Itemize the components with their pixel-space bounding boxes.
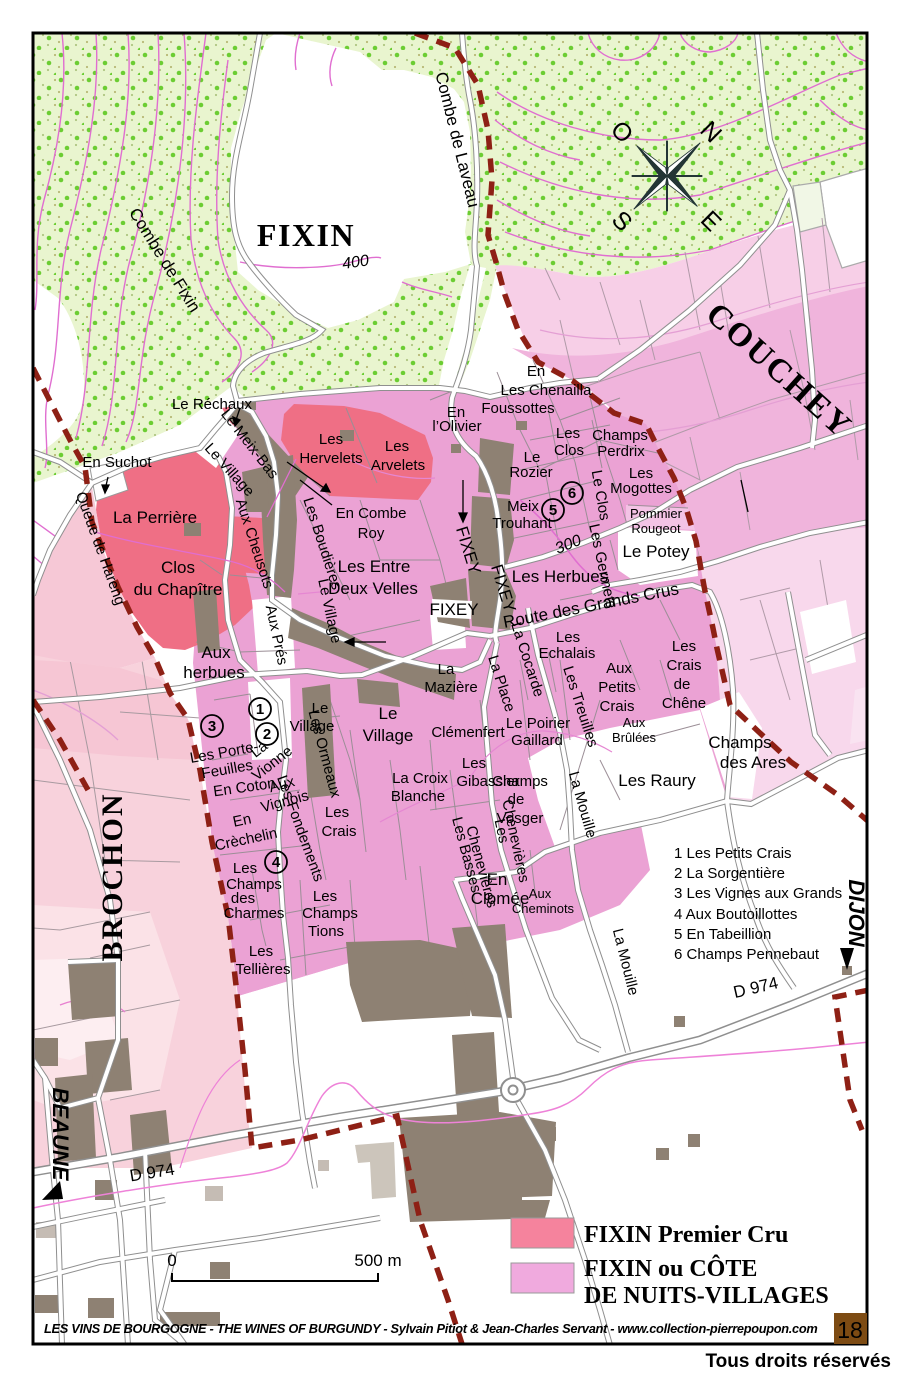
svg-text:de: de [674,676,691,693]
svg-text:5: 5 [549,502,557,519]
svg-text:0: 0 [167,1251,176,1270]
svg-text:Trouhant: Trouhant [492,515,552,532]
svg-text:3 Les Vignes aux Grands: 3 Les Vignes aux Grands [674,885,842,902]
svg-text:Charmes: Charmes [224,905,285,922]
svg-text:des Ares: des Ares [720,753,786,772]
svg-text:La Perrière: La Perrière [113,508,197,527]
svg-text:Chêne: Chêne [662,695,706,712]
svg-text:Mazière: Mazière [424,679,477,696]
svg-text:Crais: Crais [599,698,634,715]
svg-text:du Chapître: du Chapître [134,580,223,599]
svg-text:BEAUNE: BEAUNE [48,1088,73,1182]
svg-text:Foussottes: Foussottes [481,400,554,417]
svg-text:En: En [527,363,545,380]
svg-text:Aux: Aux [623,715,646,730]
svg-text:Les: Les [556,629,580,646]
svg-text:Tous droits réservés: Tous droits réservés [705,1351,891,1372]
svg-text:BROCHON: BROCHON [96,792,129,961]
svg-text:Brûlées: Brûlées [612,730,657,745]
svg-text:Les: Les [556,425,580,442]
svg-text:5 En Tabeillion: 5 En Tabeillion [674,926,771,943]
svg-text:Les: Les [325,804,349,821]
svg-text:Le Poirier: Le Poirier [506,715,570,732]
svg-text:4: 4 [272,854,281,871]
svg-text:Champs: Champs [708,733,771,752]
svg-text:Clos: Clos [161,558,195,577]
svg-text:Village: Village [363,726,414,745]
svg-text:Crais: Crais [321,823,356,840]
svg-text:500 m: 500 m [354,1251,401,1270]
svg-text:2: 2 [263,726,271,743]
svg-text:Rozier: Rozier [509,464,552,481]
svg-text:Tions: Tions [308,923,344,940]
svg-text:herbues: herbues [183,663,244,682]
svg-text:Deux Velles: Deux Velles [328,579,418,598]
svg-text:Le Réchaux: Le Réchaux [172,396,253,413]
svg-text:Gibassier: Gibassier [456,773,519,790]
svg-text:3: 3 [208,718,216,735]
svg-text:6: 6 [568,485,576,502]
svg-text:Les Entre: Les Entre [338,557,411,576]
svg-text:Cheminots: Cheminots [512,901,575,916]
svg-text:La: La [438,661,455,678]
svg-text:Clos: Clos [554,442,584,459]
svg-text:Les: Les [672,638,696,655]
svg-text:Les: Les [249,943,273,960]
svg-text:Petits: Petits [598,679,636,696]
svg-text:Pommier: Pommier [630,506,683,521]
svg-text:En Combe: En Combe [336,505,407,522]
svg-text:Arvelets: Arvelets [371,457,425,474]
svg-text:Les Herbues: Les Herbues [512,567,608,586]
svg-text:Le Potey: Le Potey [622,542,690,561]
svg-text:6 Champs Pennebaut: 6 Champs Pennebaut [674,946,820,963]
svg-text:FIXIN: FIXIN [257,217,355,253]
svg-text:Champs: Champs [302,905,358,922]
svg-text:1 Les Petits Crais: 1 Les Petits Crais [674,845,792,862]
svg-text:Roy: Roy [358,525,385,542]
svg-text:Les: Les [385,438,409,455]
svg-text:Mogottes: Mogottes [610,480,672,497]
svg-text:Gaillard: Gaillard [511,732,563,749]
svg-text:Les: Les [233,860,257,877]
svg-text:Aux: Aux [201,643,231,662]
svg-text:l’Olivier: l’Olivier [432,418,481,435]
svg-text:FIXIN Premier Cru: FIXIN Premier Cru [584,1222,788,1248]
svg-text:Hervelets: Hervelets [299,450,362,467]
svg-text:Meix: Meix [507,498,539,515]
svg-text:Tellières: Tellières [235,961,290,978]
svg-text:La Croix: La Croix [392,770,448,787]
svg-text:FIXEY: FIXEY [429,600,478,619]
svg-text:En Suchot: En Suchot [82,454,152,471]
svg-text:Les Chenailla: Les Chenailla [501,382,593,399]
svg-text:Les: Les [462,755,486,772]
svg-text:DE NUITS-VILLAGES: DE NUITS-VILLAGES [584,1283,829,1309]
svg-text:18: 18 [837,1317,863,1343]
svg-text:Echalais: Echalais [539,645,596,662]
svg-text:Les: Les [313,888,337,905]
svg-text:Les Raury: Les Raury [618,771,696,790]
svg-text:FIXIN ou CÔTE: FIXIN ou CÔTE [584,1255,757,1282]
svg-text:Champs: Champs [592,427,648,444]
svg-text:2 La Sorgentière: 2 La Sorgentière [674,865,785,882]
svg-text:Crais: Crais [666,657,701,674]
svg-text:Le: Le [379,704,398,723]
svg-text:Perdrix: Perdrix [597,443,645,460]
svg-text:Blanche: Blanche [391,788,445,805]
svg-text:Aux: Aux [606,660,632,677]
svg-text:1: 1 [256,701,264,718]
svg-text:4 Aux Boutoillottes: 4 Aux Boutoillottes [674,906,797,923]
svg-text:Clémenfert: Clémenfert [431,724,505,741]
svg-text:DIJON: DIJON [844,879,869,947]
svg-text:LES VINS DE BOURGOGNE - THE WI: LES VINS DE BOURGOGNE - THE WINES OF BUR… [44,1321,817,1336]
svg-text:Les: Les [319,431,343,448]
svg-text:Rougeot: Rougeot [631,521,681,536]
svg-text:Aux: Aux [529,886,552,901]
